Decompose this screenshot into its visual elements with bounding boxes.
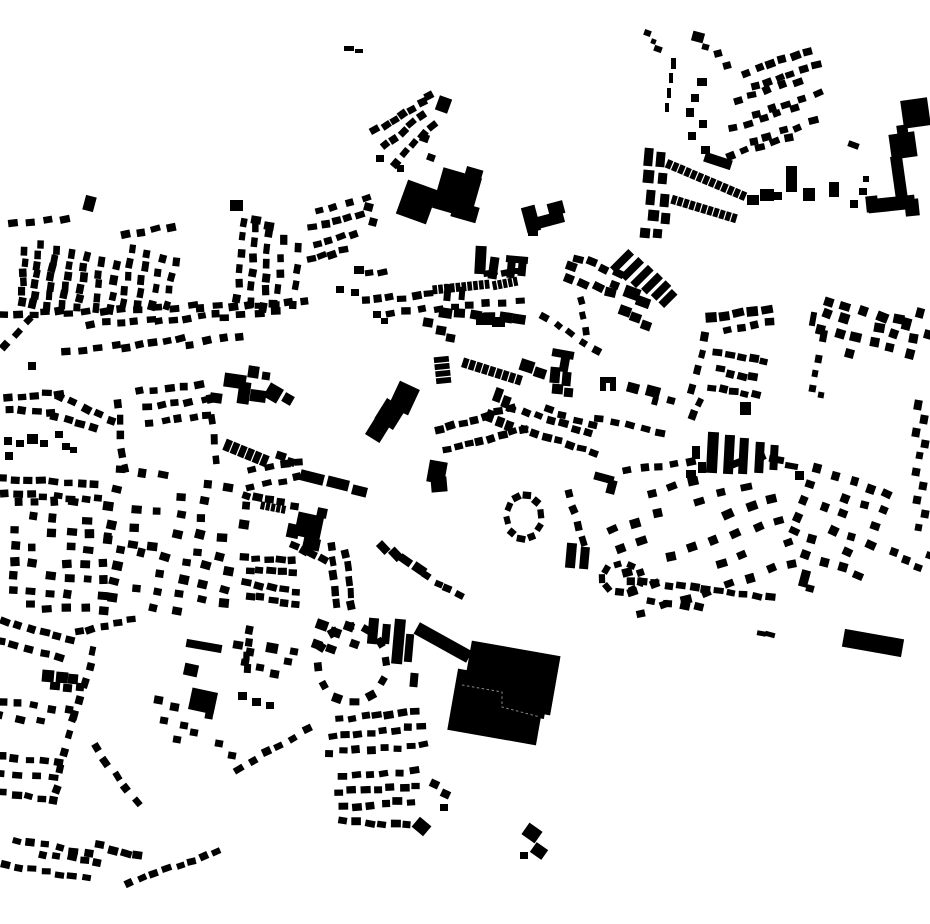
building	[218, 598, 229, 608]
building	[84, 575, 92, 583]
building	[395, 770, 403, 777]
building	[172, 257, 180, 266]
building	[821, 308, 832, 320]
building	[53, 246, 60, 255]
building	[292, 280, 300, 290]
building	[507, 269, 514, 275]
building	[321, 220, 331, 229]
building	[200, 560, 212, 571]
building	[797, 95, 807, 104]
building	[577, 296, 585, 305]
building	[636, 609, 646, 618]
building	[12, 837, 22, 845]
building	[89, 480, 98, 488]
building	[136, 547, 145, 557]
building	[716, 488, 726, 497]
building	[918, 481, 927, 490]
building	[59, 747, 69, 757]
building	[307, 223, 317, 230]
building	[61, 348, 71, 356]
building	[362, 296, 370, 304]
building	[212, 302, 222, 309]
building	[669, 73, 673, 83]
building	[865, 195, 879, 212]
building	[182, 398, 193, 407]
building	[81, 604, 90, 612]
building	[697, 78, 707, 86]
building	[369, 124, 381, 135]
building	[123, 878, 133, 888]
building	[85, 529, 95, 538]
building	[354, 266, 364, 274]
building	[46, 290, 53, 300]
building	[219, 333, 228, 342]
building	[676, 582, 686, 590]
building	[901, 555, 911, 565]
building	[73, 303, 80, 311]
building	[189, 728, 198, 736]
building	[202, 335, 213, 345]
building	[629, 518, 642, 530]
building	[407, 743, 416, 749]
building	[592, 281, 605, 293]
building	[326, 476, 350, 492]
building	[50, 682, 61, 691]
building	[279, 585, 289, 593]
building	[533, 366, 548, 379]
building	[814, 354, 822, 363]
building	[276, 269, 284, 277]
building	[391, 619, 406, 665]
building	[52, 631, 62, 640]
building	[435, 325, 446, 336]
building	[740, 483, 753, 492]
building	[444, 284, 450, 293]
building	[392, 797, 402, 805]
building	[505, 502, 514, 512]
building	[159, 552, 171, 563]
building	[132, 851, 143, 860]
building	[760, 189, 774, 201]
building	[713, 49, 723, 58]
building	[137, 468, 146, 478]
building	[470, 309, 483, 320]
building	[869, 337, 880, 348]
building	[266, 582, 278, 591]
building	[34, 250, 41, 259]
building	[89, 646, 97, 656]
building	[913, 563, 923, 572]
building	[45, 590, 54, 598]
building	[147, 338, 158, 347]
building	[4, 437, 12, 445]
building	[198, 312, 207, 319]
building	[94, 270, 102, 279]
building	[161, 864, 172, 873]
building	[70, 447, 77, 453]
building	[440, 804, 448, 811]
building	[23, 477, 32, 484]
building	[839, 301, 852, 312]
building	[170, 399, 179, 406]
building	[132, 584, 141, 592]
building	[707, 535, 719, 546]
building	[802, 47, 813, 56]
building	[152, 304, 162, 311]
building	[117, 319, 125, 326]
building	[345, 622, 354, 630]
building	[818, 392, 825, 399]
building	[344, 561, 352, 572]
building	[203, 480, 212, 489]
building	[152, 284, 160, 294]
building	[245, 625, 254, 635]
building	[537, 509, 544, 519]
building	[287, 556, 295, 564]
building	[233, 764, 245, 775]
building	[270, 503, 276, 512]
building	[227, 751, 236, 759]
building	[351, 817, 361, 825]
building	[114, 399, 123, 409]
building	[27, 434, 38, 444]
building	[20, 277, 27, 286]
building	[188, 688, 218, 715]
building	[652, 508, 663, 518]
building	[391, 820, 401, 828]
building	[911, 427, 920, 437]
building	[765, 593, 776, 601]
building	[365, 802, 375, 810]
building	[588, 421, 598, 430]
building	[888, 328, 899, 339]
building	[340, 731, 349, 738]
building	[173, 414, 182, 423]
building	[753, 521, 765, 532]
building	[294, 243, 301, 253]
building	[426, 120, 438, 132]
building	[522, 491, 531, 499]
building	[725, 351, 736, 359]
building	[911, 467, 920, 476]
building	[262, 273, 271, 283]
building	[67, 543, 76, 551]
building	[155, 569, 164, 578]
building	[167, 272, 176, 282]
building	[473, 281, 479, 290]
building	[102, 501, 114, 512]
building	[645, 190, 655, 206]
building	[896, 124, 909, 137]
building	[275, 504, 281, 513]
building	[241, 491, 251, 500]
building	[131, 505, 142, 514]
building	[363, 202, 374, 212]
building	[85, 320, 95, 329]
building	[438, 307, 453, 319]
building	[698, 462, 706, 473]
building	[148, 603, 158, 612]
building	[269, 300, 278, 308]
building	[0, 770, 5, 777]
building	[838, 312, 851, 325]
building	[255, 567, 264, 574]
building	[779, 126, 789, 135]
building	[344, 46, 354, 51]
building	[328, 570, 337, 581]
building	[650, 38, 656, 44]
building	[692, 446, 700, 459]
building	[255, 593, 264, 601]
building	[442, 583, 453, 593]
building	[168, 317, 178, 324]
building	[117, 415, 123, 425]
building	[179, 721, 188, 729]
building	[289, 541, 300, 551]
building	[148, 869, 159, 879]
building	[116, 465, 125, 473]
building	[246, 593, 256, 601]
building	[300, 297, 309, 305]
building	[260, 501, 266, 510]
building	[893, 313, 906, 324]
building	[63, 310, 73, 317]
building	[712, 208, 719, 218]
building	[327, 542, 336, 551]
building	[64, 480, 73, 486]
building	[850, 200, 858, 208]
building	[68, 249, 76, 260]
building	[749, 320, 759, 329]
building	[842, 629, 904, 657]
building	[492, 281, 498, 291]
building	[665, 103, 669, 112]
building	[541, 433, 552, 443]
building	[925, 551, 930, 560]
building	[338, 803, 348, 810]
building	[66, 872, 77, 879]
building	[803, 188, 815, 201]
building	[133, 306, 142, 313]
building	[338, 816, 348, 824]
building	[235, 279, 243, 288]
building	[346, 786, 356, 794]
building	[43, 216, 53, 224]
building	[629, 311, 642, 323]
building	[516, 297, 525, 303]
building	[11, 541, 20, 550]
building	[615, 588, 624, 596]
building	[28, 362, 36, 370]
building	[32, 772, 41, 779]
building	[658, 173, 668, 185]
building	[884, 342, 894, 352]
building	[299, 469, 325, 485]
building	[33, 269, 41, 278]
building	[103, 535, 113, 545]
building	[81, 495, 90, 503]
building	[747, 195, 759, 205]
building	[211, 847, 222, 856]
building	[38, 851, 47, 860]
building	[773, 516, 784, 525]
building	[41, 669, 54, 682]
building	[499, 311, 513, 323]
building	[186, 857, 196, 866]
building	[764, 59, 776, 70]
building	[220, 314, 229, 321]
building	[29, 701, 38, 709]
building	[153, 695, 163, 704]
building	[5, 452, 13, 460]
building	[792, 124, 802, 133]
building	[583, 428, 593, 437]
building	[329, 556, 337, 566]
building	[686, 108, 694, 117]
building	[811, 60, 823, 69]
building	[79, 263, 87, 272]
building	[579, 311, 587, 320]
building	[381, 318, 388, 324]
building	[13, 490, 23, 497]
building	[319, 680, 329, 691]
building	[378, 727, 387, 735]
building	[381, 744, 389, 751]
building	[706, 432, 719, 474]
building	[827, 525, 839, 537]
building	[485, 434, 495, 444]
building	[399, 147, 410, 158]
building	[469, 416, 479, 425]
building	[174, 590, 184, 598]
building	[18, 394, 27, 401]
building	[351, 484, 368, 497]
building	[724, 211, 731, 221]
building	[352, 730, 362, 738]
building	[582, 327, 590, 336]
building	[348, 230, 358, 240]
building	[573, 417, 583, 425]
building	[373, 311, 381, 318]
building	[725, 369, 735, 379]
building	[688, 200, 695, 210]
building	[302, 724, 313, 734]
building	[700, 204, 707, 214]
building	[798, 495, 809, 506]
building	[534, 411, 544, 420]
building	[539, 312, 550, 323]
building	[95, 279, 102, 288]
building	[230, 200, 243, 211]
building	[80, 560, 90, 568]
building	[338, 246, 349, 254]
building	[819, 557, 830, 568]
building	[59, 290, 68, 300]
building	[248, 756, 259, 766]
building	[498, 300, 506, 307]
building	[120, 230, 131, 240]
building	[135, 386, 144, 394]
building	[186, 639, 223, 653]
building	[830, 471, 840, 482]
building	[863, 176, 869, 182]
building	[15, 498, 23, 506]
building	[0, 474, 7, 481]
building	[383, 710, 394, 719]
building	[635, 535, 648, 546]
building	[280, 459, 291, 468]
building	[129, 317, 138, 325]
building	[208, 414, 216, 425]
building	[317, 554, 329, 565]
building	[345, 576, 353, 587]
building	[28, 544, 36, 552]
building	[666, 396, 676, 405]
building	[718, 209, 725, 219]
building	[654, 463, 663, 470]
building	[365, 819, 376, 828]
building	[904, 198, 920, 216]
building	[91, 742, 102, 753]
building	[618, 304, 633, 318]
building	[238, 692, 247, 700]
building	[615, 543, 627, 554]
building	[422, 317, 433, 328]
building	[255, 663, 264, 671]
building	[67, 397, 78, 407]
building	[325, 750, 333, 757]
building	[251, 237, 258, 247]
building	[30, 279, 38, 289]
building	[294, 458, 303, 465]
building	[442, 446, 452, 454]
building	[429, 778, 441, 789]
building	[28, 298, 38, 309]
building	[389, 115, 400, 125]
building	[277, 254, 284, 262]
building	[761, 85, 771, 95]
building	[873, 322, 885, 333]
building	[289, 647, 298, 655]
building	[244, 301, 254, 310]
building	[889, 547, 899, 557]
building	[561, 372, 571, 387]
building	[920, 439, 929, 448]
building	[120, 783, 131, 794]
building	[40, 649, 50, 657]
building	[751, 82, 761, 91]
building	[739, 146, 749, 155]
building	[407, 799, 416, 806]
building	[78, 479, 87, 487]
building	[606, 524, 618, 535]
building	[21, 247, 28, 256]
building	[512, 313, 527, 325]
building	[248, 268, 257, 277]
building	[528, 228, 538, 236]
building	[912, 495, 921, 504]
building	[27, 558, 37, 568]
building	[194, 529, 206, 540]
building	[292, 589, 300, 596]
building	[9, 754, 19, 763]
building	[736, 550, 747, 560]
building	[126, 616, 136, 623]
building	[169, 702, 179, 711]
building	[162, 337, 172, 345]
building	[245, 638, 253, 647]
building	[50, 496, 58, 506]
